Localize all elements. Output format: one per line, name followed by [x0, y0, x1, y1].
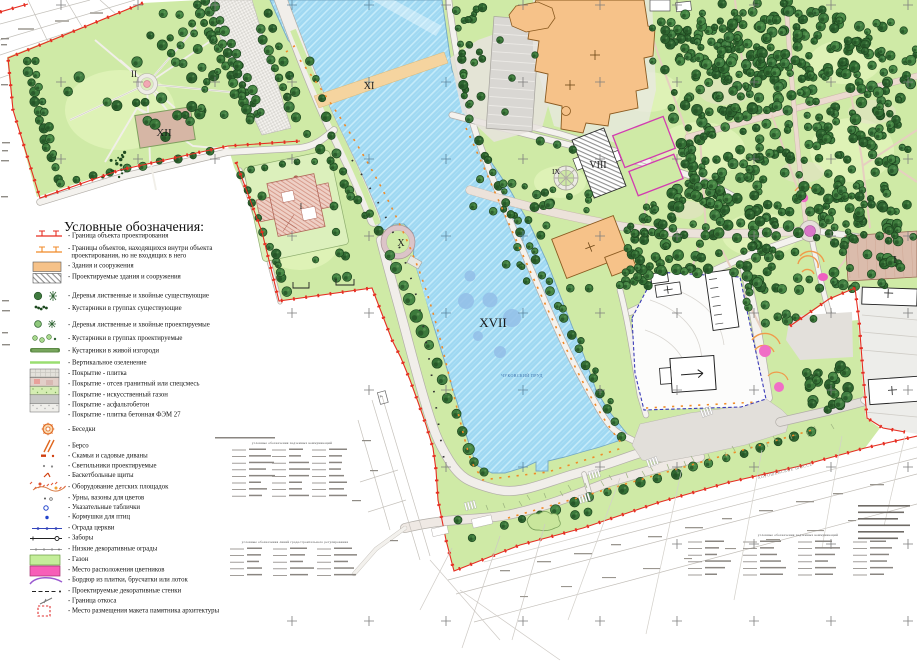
svg-text:- Деревья лиственные и хвойные: - Деревья лиственные и хвойные проектиру…	[68, 322, 210, 329]
svg-text:- Низкие декоративные ограды: - Низкие декоративные ограды	[68, 546, 158, 553]
svg-text:XII: XII	[156, 127, 172, 139]
svg-text:- Кустарники в группах проекти: - Кустарники в группах проектируемые	[68, 335, 182, 342]
svg-text:- Покрытие - плитка: - Покрытие - плитка	[68, 370, 127, 377]
svg-text:- Проектируемые декоративные с: - Проектируемые декоративные стенки	[68, 588, 182, 595]
svg-text:- Границы объектов, находящихс: - Границы объектов, находящихся внутри о…	[68, 245, 212, 252]
svg-text:I: I	[893, 254, 897, 266]
svg-text:XVII: XVII	[479, 315, 506, 330]
svg-text:- Кустарники в группах существ: - Кустарники в группах существующие	[68, 305, 182, 312]
svg-text:- Газон: - Газон	[68, 556, 89, 563]
svg-text:- Покрытие - асфальтобетон: - Покрытие - асфальтобетон	[68, 402, 150, 409]
svg-text:- Бордюр из плитки, брусчатки: - Бордюр из плитки, брусчатки или лоток	[68, 577, 188, 584]
svg-text:- Ограда церкви: - Ограда церкви	[68, 525, 115, 532]
svg-text:- Место размещения макета памя: - Место размещения макета памятника архи…	[68, 608, 220, 615]
svg-text:- Беседки: - Беседки	[68, 426, 96, 433]
svg-text:- Вертикальное озеленение: - Вертикальное озеленение	[68, 360, 147, 367]
svg-text:II: II	[131, 69, 137, 79]
svg-text:- Проектируемые здания и соору: - Проектируемые здания и сооружения	[68, 274, 181, 281]
svg-text:- Баскетбольные щиты: - Баскетбольные щиты	[68, 472, 134, 479]
svg-text:- Скамьи и садовые диваны: - Скамьи и садовые диваны	[68, 453, 148, 460]
svg-text:- Граница объекта проектирован: - Граница объекта проектирования	[68, 233, 168, 240]
svg-text:- Заборы: - Заборы	[68, 535, 94, 542]
svg-text:- Здания и сооружения: - Здания и сооружения	[68, 263, 134, 270]
svg-text:XI: XI	[364, 81, 375, 92]
svg-text:- Берсо: - Берсо	[68, 443, 89, 450]
svg-text:I: I	[300, 202, 303, 211]
svg-text:- Покрытие - отсев гранитный и: - Покрытие - отсев гранитный или спецсме…	[68, 381, 200, 388]
svg-text:- Кормушки для птиц: - Кормушки для птиц	[68, 514, 130, 521]
svg-text:условные обозначения подземных: условные обозначения подземных коммуника…	[252, 441, 332, 445]
svg-text:- Урны, вазоны для цветов: - Урны, вазоны для цветов	[68, 495, 144, 502]
svg-text:условные обозначения подземных: условные обозначения подземных коммуника…	[758, 533, 838, 537]
svg-text:- Оборудование детских площадо: - Оборудование детских площадок	[68, 484, 169, 491]
svg-text:проектирования, но не входящих: проектирования, но не входящих в него	[68, 253, 187, 260]
svg-text:X: X	[397, 238, 405, 249]
svg-text:VIII: VIII	[589, 160, 606, 171]
svg-text:- Светильники проектируемые: - Светильники проектируемые	[68, 463, 157, 470]
svg-text:- Деревья лиственные и хвойные: - Деревья лиственные и хвойные существую…	[68, 293, 209, 300]
svg-text:- Покрытие - плитка бетонная Ф: - Покрытие - плитка бетонная ФЭМ 27	[68, 412, 181, 419]
svg-text:- Указательные таблички: - Указательные таблички	[68, 504, 140, 511]
svg-text:IX: IX	[552, 167, 560, 176]
svg-text:условные обозначения линий гра: условные обозначения линий градостроител…	[242, 540, 349, 544]
svg-text:- Место расположения цветников: - Место расположения цветников	[68, 567, 164, 574]
svg-text:- Граница откоса: - Граница откоса	[68, 598, 116, 605]
svg-text:- Кустарники в живой изгороди: - Кустарники в живой изгороди	[68, 348, 159, 355]
svg-text:ЧУКОВСКИЙ ПРУД: ЧУКОВСКИЙ ПРУД	[501, 373, 542, 378]
svg-text:- Покрытие - искусственный газ: - Покрытие - искусственный газон	[68, 392, 168, 399]
